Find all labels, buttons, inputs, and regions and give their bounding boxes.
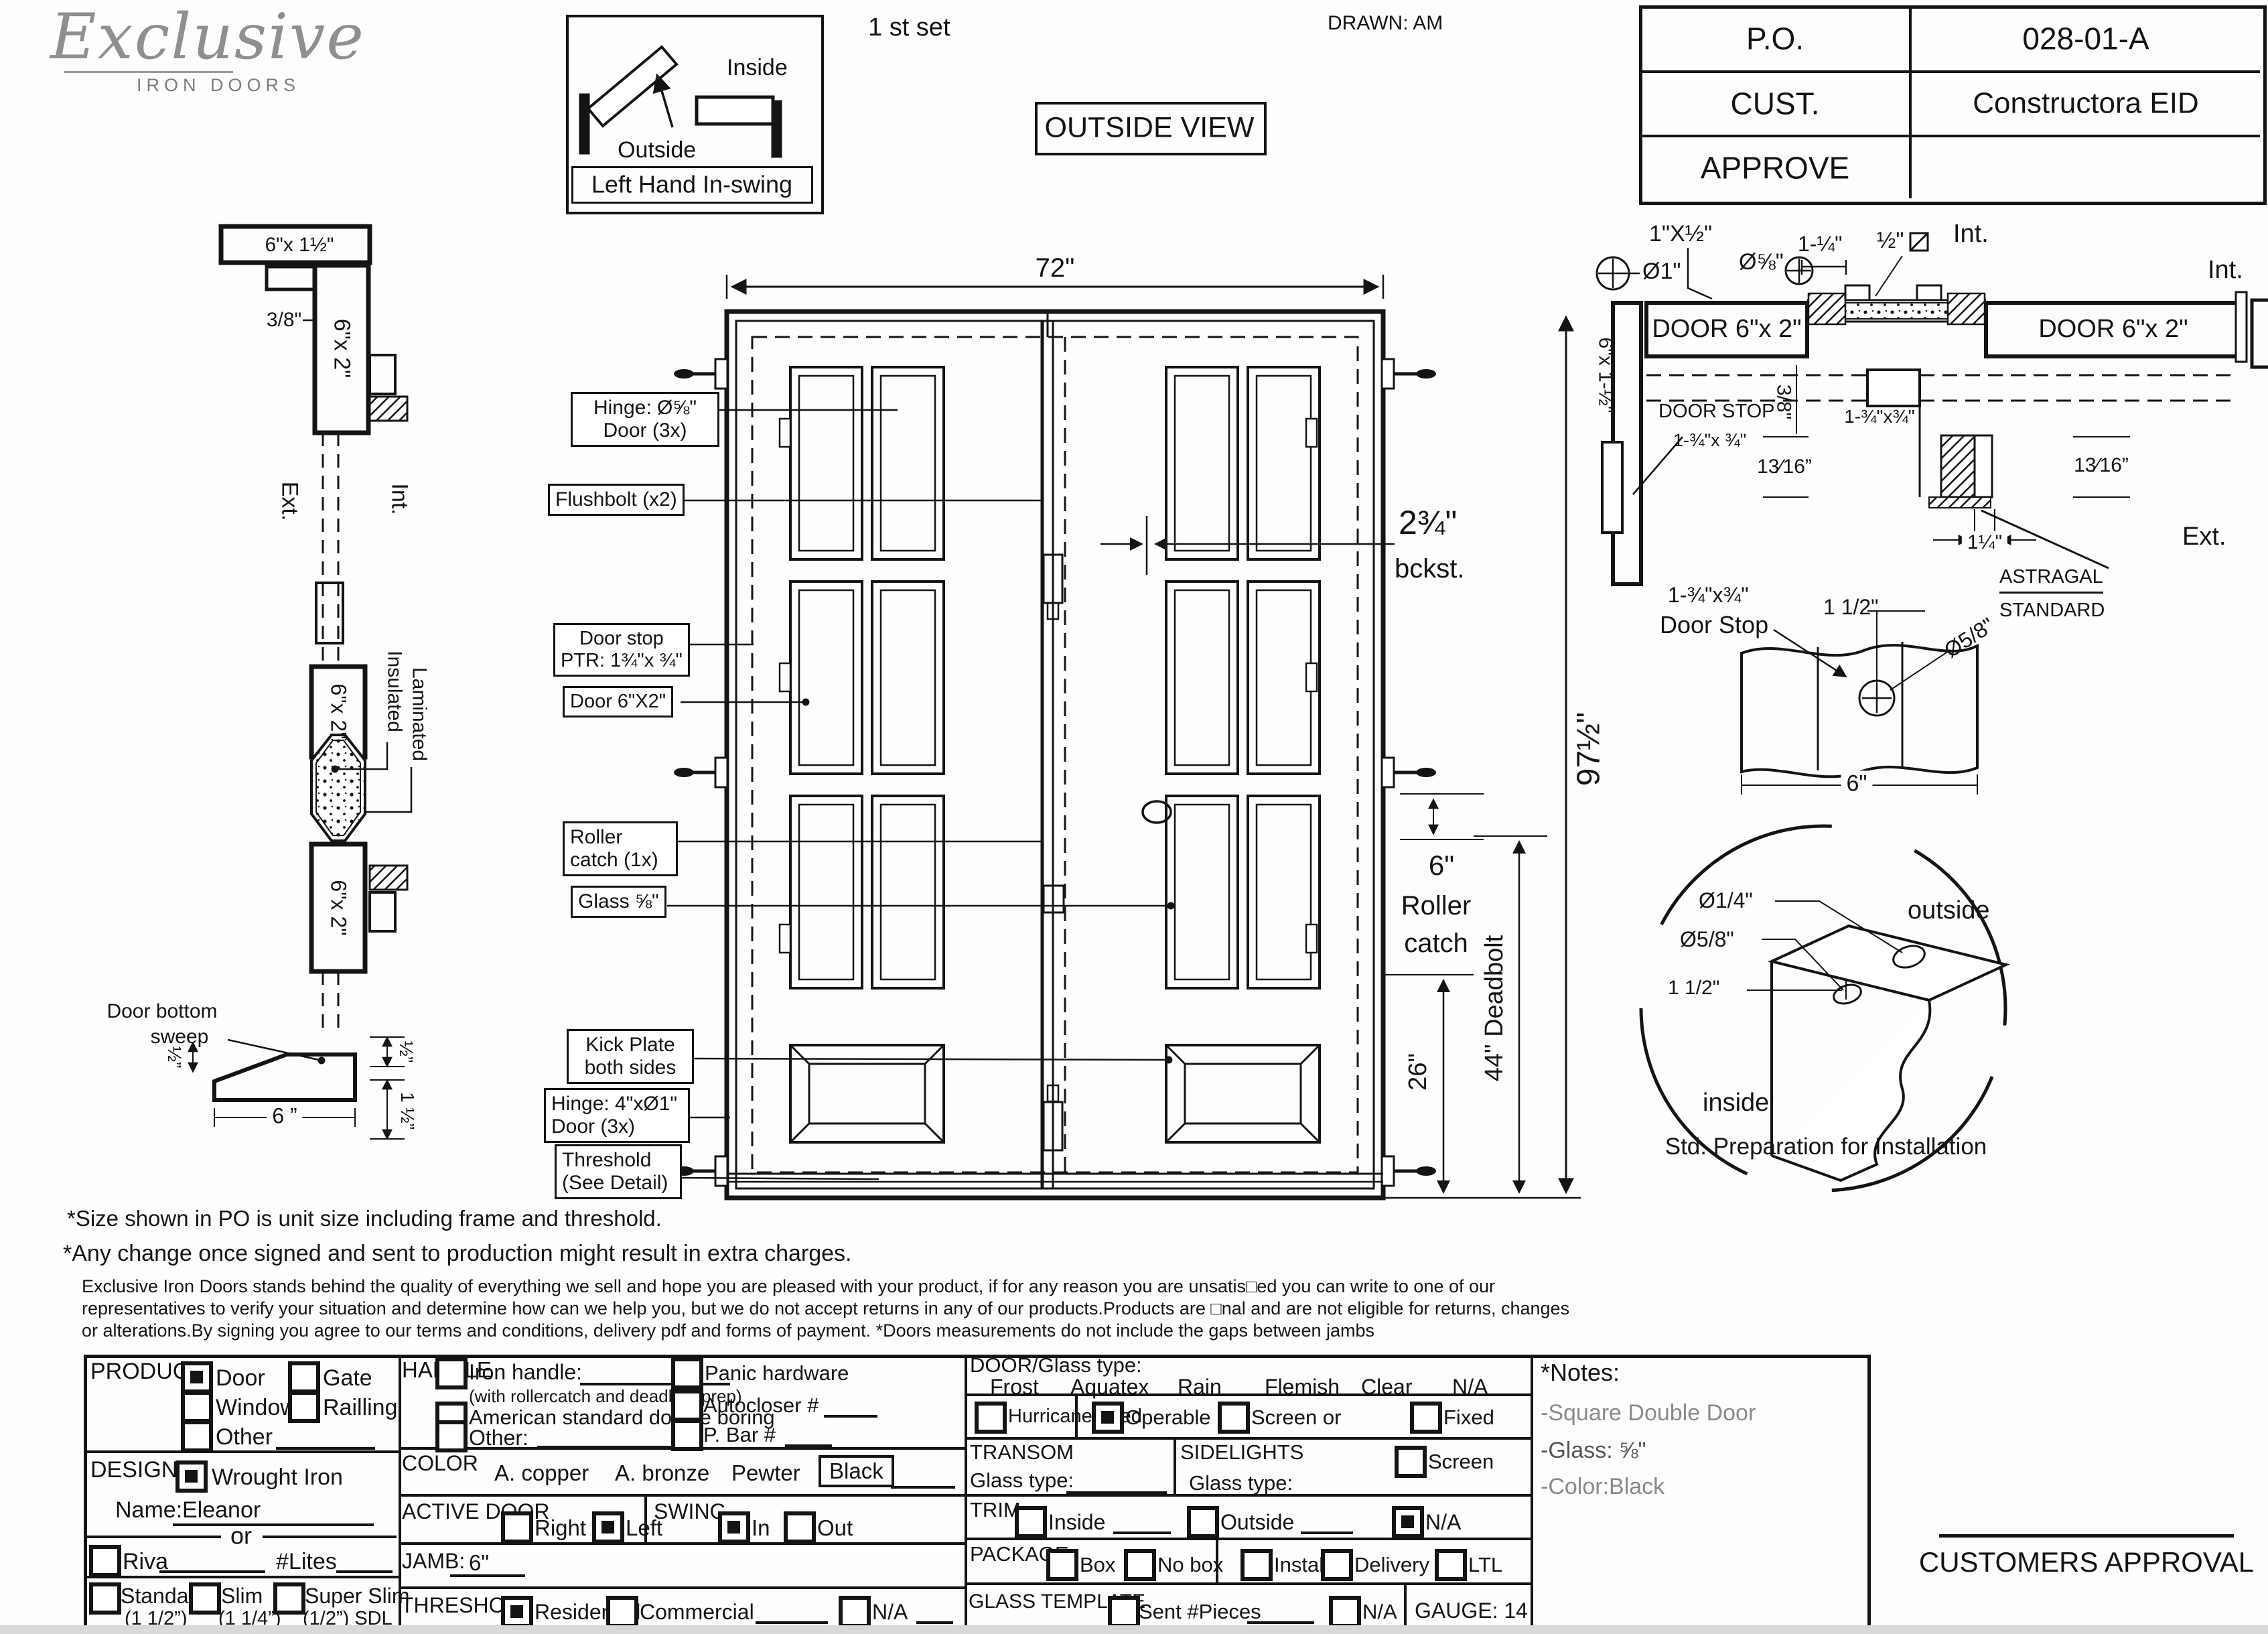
hd-door-stop-2: 1-¾"x ¾" (1673, 430, 1746, 451)
pd-caption: Std. Preparation for Installation (1665, 1134, 1987, 1160)
approval-signature-line[interactable] (1939, 1534, 2234, 1538)
design-wrought-checkbox[interactable] (175, 1460, 208, 1493)
handle-autocloser-blank[interactable] (824, 1388, 877, 1418)
hd-gap: 3/8" (1772, 385, 1795, 419)
color-bronze[interactable]: A. bronze (615, 1460, 709, 1486)
deadbolt-dim: 44" Deadbolt (1480, 935, 1510, 1081)
screen-or-checkbox[interactable] (1218, 1402, 1250, 1434)
ext-label: Ext. (276, 482, 302, 521)
active-left-checkbox[interactable] (592, 1511, 624, 1544)
handle-other-label: Other: (469, 1426, 528, 1450)
design-lites-label: #Lites (276, 1549, 337, 1575)
form-notes-item-1: -Square Double Door (1541, 1400, 1756, 1426)
backset-label: bckst. (1395, 553, 1464, 584)
product-window-checkbox[interactable] (181, 1391, 213, 1423)
door-height-dim: 97½" (1570, 712, 1607, 786)
design-superslim-label: Super Slim (305, 1584, 410, 1609)
hd-114b: 1¼" (1962, 531, 2007, 555)
handle-pbar-label: P. Bar # (703, 1423, 776, 1447)
trim-outside-label: Outside (1220, 1510, 1294, 1535)
product-railling-label: Railling (323, 1395, 398, 1421)
set-label: 1 st set (868, 13, 950, 43)
handle-panic-checkbox[interactable] (671, 1357, 703, 1389)
design-riva-checkbox[interactable] (89, 1545, 121, 1577)
callout-kick: Kick Plateboth sides (567, 1029, 694, 1084)
active-right-checkbox[interactable] (501, 1511, 533, 1544)
door-stop-detail-drawing (1742, 611, 1977, 795)
left-jamb-section-drawing (193, 226, 411, 1139)
glass-na[interactable]: N/A (1452, 1375, 1488, 1400)
product-other-label: Other (216, 1424, 273, 1450)
color-label: COLOR (402, 1451, 478, 1476)
dim-half-right: ½” (395, 1041, 417, 1063)
template-sent-label: Sent #Pieces (1139, 1600, 1261, 1624)
note-line-1: *Size shown in PO is unit size including… (67, 1206, 662, 1231)
screen-or-label: Screen or (1251, 1406, 1341, 1430)
transom-glass-blank[interactable] (1066, 1465, 1167, 1494)
trim-inside-blank[interactable] (1113, 1506, 1171, 1534)
color-black-selected[interactable]: Black (819, 1455, 894, 1487)
callout-text: Hinge: Ø⅝" (578, 397, 712, 419)
threshold-commercial-blank[interactable] (756, 1594, 828, 1624)
product-other-checkbox[interactable] (181, 1420, 213, 1452)
handle-pbar-checkbox[interactable] (671, 1419, 703, 1451)
template-na-label: N/A (1362, 1600, 1397, 1624)
swing-inside-label: Inside (727, 55, 788, 81)
sidelights-screen-checkbox[interactable] (1395, 1446, 1427, 1478)
hd-door-tube-left: DOOR 6"x 2" (1652, 315, 1801, 344)
glass-flemish[interactable]: Flemish (1265, 1375, 1340, 1400)
transom-label: TRANSOM (970, 1440, 1074, 1465)
roller-word-1: Roller (1401, 890, 1471, 921)
product-railling-checkbox[interactable] (288, 1391, 320, 1423)
threshold-na-label: N/A (872, 1600, 908, 1625)
design-riva-blank[interactable] (159, 1542, 265, 1573)
swing-out-checkbox[interactable] (784, 1511, 816, 1544)
roller-dim: 6" (1429, 849, 1454, 882)
package-delivery-checkbox[interactable] (1321, 1549, 1353, 1581)
hurricane-checkbox[interactable] (975, 1402, 1007, 1434)
logo-underline (64, 71, 233, 73)
sidelights-label: SIDELIGHTS (1180, 1440, 1303, 1465)
hd-int-2: Int. (2208, 256, 2243, 285)
sd-title: Door Stop (1660, 611, 1768, 638)
hd-int-1: Int. (1953, 220, 1989, 249)
hd-dia58: Ø⅝" (1739, 249, 1784, 275)
sd-size: 1-¾"x¾" (1668, 583, 1749, 608)
package-install-label: Install (1274, 1553, 1328, 1577)
package-ltl-checkbox[interactable] (1435, 1549, 1467, 1581)
template-sent-blank[interactable] (1247, 1594, 1314, 1624)
form-notes-label: *Notes: (1541, 1359, 1620, 1386)
gap-dim-label: 3/8" (267, 309, 301, 332)
cust-label: CUST. (1731, 86, 1820, 122)
handle-autocloser-label: Autocloser # (703, 1393, 819, 1418)
product-window-label: Window (216, 1395, 297, 1421)
callout-door-stop: Door stopPTR: 1¾"x ¾" (553, 623, 690, 677)
fixed-label: Fixed (1443, 1406, 1494, 1430)
sweep-label-2: sweep (151, 1026, 209, 1049)
pd-dia14: Ø1/4" (1699, 888, 1753, 913)
cust-value: Constructora EID (1973, 87, 2198, 121)
threshold-commercial-label: Commercial (640, 1600, 754, 1625)
approval-label: CUSTOMERS APPROVAL (1919, 1546, 2254, 1578)
callout-hinge-bottom: Hinge: 4"xØ1"Door (3x) (544, 1088, 690, 1143)
jamb-blank[interactable] (450, 1546, 525, 1577)
note-para-3: or alterations.By signing you agree to o… (82, 1320, 1374, 1341)
dim-1half-right: 1 ½” (397, 1092, 418, 1130)
product-gate-label: Gate (323, 1365, 372, 1391)
pd-112: 1 1/2" (1668, 977, 1719, 1000)
swing-caption: Left Hand In-swing (591, 170, 792, 198)
package-nobox-checkbox[interactable] (1124, 1549, 1156, 1581)
hd-dia1: Ø1" (1642, 259, 1681, 285)
roller-word-2: catch (1404, 928, 1468, 959)
form-notes-item-2: -Glass: ⅝" (1541, 1438, 1646, 1464)
bottom-strip (0, 1625, 2268, 1634)
handle-panic-label: Panic hardware (705, 1361, 849, 1385)
package-box-checkbox[interactable] (1046, 1549, 1078, 1581)
insulated-label: Insulated (382, 651, 406, 732)
hd-jamb-side: 6"x 1-½" (1593, 337, 1617, 413)
head-size-label: 6"x 1½" (265, 234, 334, 257)
glass-frost[interactable]: Frost (990, 1375, 1039, 1400)
dim-6-bottom: 6 ” (267, 1104, 302, 1129)
form-notes-item-3: -Color:Black (1541, 1474, 1664, 1500)
design-standard-checkbox[interactable] (89, 1582, 121, 1615)
callout-flushbolt: Flushbolt (x2) (548, 484, 685, 516)
dim-26: 26" (1404, 1053, 1433, 1091)
door-width-dim: 72" (1036, 253, 1075, 283)
swing-out-label: Out (817, 1515, 853, 1541)
po-value: 028-01-A (2022, 21, 2149, 57)
hinge-straps (674, 359, 1436, 1186)
color-pewter[interactable]: Pewter (731, 1460, 800, 1486)
swing-label: SWING (654, 1499, 726, 1524)
product-other-blank[interactable] (276, 1422, 375, 1450)
threshold-residential-checkbox[interactable] (501, 1596, 533, 1628)
transom-glass-type: Glass type: (970, 1469, 1074, 1493)
note-line-2: *Any change once signed and sent to prod… (63, 1241, 852, 1267)
design-name-blank[interactable] (173, 1495, 374, 1526)
design-slim-checkbox[interactable] (189, 1582, 221, 1615)
tube-label-mid: 6"x 2" (326, 683, 351, 739)
sd-6: 6" (1841, 770, 1873, 797)
sweep-label-1: Door bottom (107, 1000, 217, 1024)
threshold-na-blank[interactable] (916, 1594, 953, 1624)
logo-subtitle: IRON DOORS (137, 75, 300, 96)
tube-label-top: 6"x 2" (328, 319, 354, 378)
backset-value: 2¾" (1399, 504, 1457, 543)
threshold-na-checkbox[interactable] (839, 1596, 871, 1628)
design-label: DESIGN: (90, 1457, 184, 1483)
callout-hinge-top: Hinge: Ø⅝" Door (3x) (571, 392, 719, 447)
sd-112: 1 1/2" (1823, 595, 1879, 620)
dim-half-left: ½” (163, 1046, 185, 1069)
outside-view-label: OUTSIDE VIEW (1045, 111, 1255, 144)
hd-ext: Ext. (2182, 523, 2226, 552)
handle-other-checkbox[interactable] (435, 1420, 468, 1452)
hd-center-size: 1-¾"x¾" (1844, 406, 1914, 427)
pd-dia58: Ø5/8" (1680, 927, 1734, 952)
door-elevation-drawing (667, 275, 1581, 1198)
hd-1316-left: 13⁄16” (1752, 456, 1817, 479)
product-gate-checkbox[interactable] (288, 1361, 320, 1393)
trim-na-checkbox[interactable] (1392, 1506, 1424, 1538)
handle-autocloser-checkbox[interactable] (671, 1389, 703, 1422)
gauge-label: GAUGE: 14 (1415, 1598, 1528, 1623)
hd-114: 1-¼" (1798, 232, 1843, 257)
callout-text: Door (3x) (578, 419, 712, 442)
approve-label: APPROVE (1701, 151, 1849, 186)
callout-threshold: Threshold(See Detail) (555, 1144, 682, 1199)
callout-roller: Rollercatch (1x) (563, 821, 678, 876)
callout-door-tube: Door 6"X2" (563, 686, 673, 718)
logo-script: Exclusive (50, 1, 365, 74)
int-label: Int. (386, 483, 412, 515)
trim-outside-checkbox[interactable] (1187, 1506, 1219, 1538)
design-wrought-label: Wrought Iron (212, 1465, 343, 1491)
operable-label: Operable (1125, 1406, 1211, 1430)
template-sent-checkbox[interactable] (1108, 1596, 1140, 1628)
order-drawing-page: Exclusive IRON DOORS Inside Outside Left… (0, 0, 2268, 1634)
po-label: P.O. (1746, 21, 1804, 57)
glass-aquatex[interactable]: Aquatex (1070, 1375, 1149, 1400)
glass-rain[interactable]: Rain (1178, 1375, 1222, 1400)
hd-door-tube-right: DOOR 6"x 2" (2038, 315, 2188, 344)
hd-astragal-1: ASTRAGAL (1999, 566, 2103, 594)
package-box-label: Box (1080, 1553, 1115, 1577)
hd-1316-right: 13⁄16” (2068, 454, 2134, 478)
trim-label: TRIM (970, 1498, 1021, 1522)
product-door-checkbox[interactable] (181, 1361, 213, 1393)
installation-prep-drawing (1586, 771, 2060, 1245)
sidelights-glass-type: Glass type: (1189, 1471, 1293, 1495)
swing-in-label: In (752, 1515, 770, 1541)
design-lites-blank[interactable] (336, 1542, 393, 1573)
product-door-label: Door (216, 1365, 265, 1391)
glass-clear[interactable]: Clear (1361, 1375, 1412, 1400)
laminated-label: Laminated (407, 667, 431, 761)
swing-outside-label: Outside (618, 137, 696, 163)
design-slim-label: Slim (221, 1584, 263, 1609)
handle-other-blank[interactable] (537, 1419, 678, 1448)
hd-1x12: 1"X½" (1649, 221, 1712, 247)
handle-pbar-blank[interactable] (785, 1418, 832, 1447)
note-para-2: representatives to verify your situation… (82, 1298, 1569, 1319)
sidelights-glass-blank[interactable] (1286, 1467, 1387, 1497)
handle-iron-checkbox[interactable] (435, 1357, 468, 1389)
fixed-checkbox[interactable] (1410, 1402, 1442, 1434)
package-install-checkbox[interactable] (1241, 1549, 1273, 1581)
operable-checkbox[interactable] (1092, 1402, 1124, 1434)
tube-label-bottom: 6"x 2" (326, 880, 351, 935)
pd-outside: outside (1908, 896, 1990, 926)
package-delivery-label: Delivery (1354, 1553, 1429, 1577)
threshold-commercial-checkbox[interactable] (606, 1596, 638, 1628)
pd-inside: inside (1703, 1089, 1769, 1118)
hd-12: ½" (1877, 228, 1904, 254)
active-right-label: Right (535, 1515, 586, 1541)
trim-inside-checkbox[interactable] (1015, 1506, 1047, 1538)
sidelights-screen-label: Screen (1428, 1450, 1494, 1474)
package-ltl-label: LTL (1468, 1553, 1502, 1577)
template-na-checkbox[interactable] (1329, 1596, 1361, 1628)
color-copper[interactable]: A. copper (494, 1460, 589, 1486)
handle-iron-label: Iron handle: (469, 1360, 582, 1385)
trim-inside-label: Inside (1048, 1510, 1105, 1535)
trim-na-label: N/A (1425, 1510, 1461, 1535)
package-nobox-label: No box (1157, 1553, 1223, 1577)
callout-glass: Glass ⅝" (571, 886, 666, 918)
color-blank[interactable] (891, 1459, 955, 1489)
swing-in-checkbox[interactable] (718, 1511, 750, 1544)
note-para-1: Exclusive Iron Doors stands behind the q… (82, 1276, 1495, 1297)
trim-outside-blank[interactable] (1301, 1506, 1353, 1534)
door-glass-label: DOOR/Glass type: (970, 1353, 1142, 1377)
design-superslim-checkbox[interactable] (273, 1582, 305, 1615)
hd-astragal-2: STANDARD (1999, 600, 2105, 622)
drawn-label: DRAWN: AM (1328, 12, 1443, 36)
hd-door-stop-1: DOOR STOP (1658, 401, 1775, 423)
